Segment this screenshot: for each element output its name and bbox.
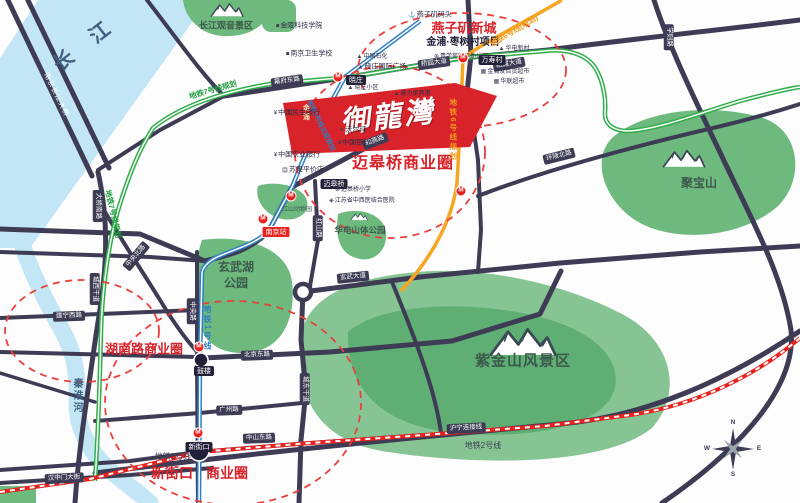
metro-icon-line6: M xyxy=(456,186,467,197)
poi-hualian-market-icon: ▦ xyxy=(494,79,500,85)
road-tag-beijingdonglu: 北京东路 xyxy=(241,350,273,361)
metro-icon-nanjing-station: M xyxy=(258,214,269,225)
poi-minsheng-bank-icon: ¥ xyxy=(274,111,277,117)
poi-xiaozhuang-estate: ▲晓庄小区 xyxy=(348,85,379,91)
metro6-label-lower: 地铁6号线规划 xyxy=(449,98,457,161)
rail-station-tag-nanjing: 南京站 xyxy=(262,226,291,238)
road-tag-xuezelu: 学则路 xyxy=(664,24,674,50)
metro7-label-left: 地铁7号线规划 xyxy=(104,189,122,239)
compass-s: S xyxy=(731,472,735,479)
road-tag-chengdonggandao: 城东干道 xyxy=(300,373,310,405)
poi-agri-bank: ¥中国农业银行 xyxy=(274,152,320,159)
poi-minsheng-bank-text: 中国民生银行 xyxy=(278,110,320,117)
road-tag-zhongshandonglu: 中山东路 xyxy=(243,433,275,444)
yangtze-river-label: 长 江 xyxy=(50,13,122,75)
poi-gaoli-furniture-text: 高力家具港 xyxy=(400,91,430,97)
compass-w: W xyxy=(704,446,710,453)
metro-icon-maigaoqiao: M xyxy=(286,191,297,202)
hongshan-zoo-label: 红山动物园 xyxy=(282,207,312,213)
poi-nanjing-health-school: ■南京卫生学校 xyxy=(286,51,333,58)
poi-sinopec: ▲中国石化 xyxy=(357,54,388,60)
xinjiekou-biz-label-1: 新街口 xyxy=(151,466,193,480)
poi-jinling-tech-text: 金陵科技学院 xyxy=(280,23,322,30)
poi-xiaozhuang-plaza: ▲晓庄国际广场 xyxy=(358,64,407,71)
road-tag-zhongyangbeilu: 中央北路 xyxy=(122,241,150,272)
road-tag-mufudonglu: 幕府东路 xyxy=(270,74,303,88)
road-tag-jianningxilu: 建宁西路 xyxy=(53,311,85,322)
poi-jinrunfa-mall: ▦金润发百货超市 xyxy=(481,69,530,75)
metro-icon-xiaozhuang: M xyxy=(333,72,344,83)
road-tag-huanlingbeilu: 环陵北路 xyxy=(542,148,575,165)
road-tag-guangzhoulu: 广州路 xyxy=(216,405,242,415)
xuanwu-lake-label-2: 公园 xyxy=(224,277,248,289)
road-tag-hongshanlu: 红山路 xyxy=(313,215,323,241)
poi-hualian-market: ▦华联超市 xyxy=(494,79,525,85)
poi-huadian-xincun: ▲华电新村 xyxy=(499,46,530,52)
metro1-ext-label: 地铁1号线北延规划 xyxy=(305,100,335,153)
poi-suguo-market-text: 苏果平价店 xyxy=(289,167,324,174)
poi-kindergarten-icon: ⊕ xyxy=(434,54,439,60)
poi-xiaozhuang-estate-icon: ▲ xyxy=(348,85,354,91)
poi-huadian-xincun-text: 华电新村 xyxy=(505,46,529,52)
bridge-label: 南京长江大桥 xyxy=(42,72,69,118)
qinhuai-river-label: 秦淮河 xyxy=(71,378,81,414)
poi-maigaoqiao-primary-icon: ⊕ xyxy=(335,187,340,193)
poi-suguo-market: ▤苏果平价店 xyxy=(282,167,324,174)
poi-nanjing-health-school-icon: ■ xyxy=(286,52,290,58)
poi-maigaoqiao-primary: ⊕迈皋桥小学 xyxy=(335,187,371,193)
poi-gaoli-furniture-icon: ▲ xyxy=(394,91,400,97)
xinjiekou-biz-label-2: 商业圈 xyxy=(206,466,248,480)
poi-jiangsu-hospital-text: 江苏省中西医结合医院 xyxy=(335,198,395,204)
road-tag-daqiaonanlu: 大桥南路 xyxy=(93,190,103,222)
poi-xiaozhuang-estate-text: 晓庄小区 xyxy=(354,85,378,91)
poi-jiangsu-hospital-icon: ◈ xyxy=(329,198,334,204)
station-tag-gulou: 鼓楼 xyxy=(194,366,214,376)
metro-icon-wanshoucun: M xyxy=(458,53,469,64)
station-tag-xinjiekou: 新街口 xyxy=(186,442,213,452)
poi-bank-of-china-text: 中国银行 xyxy=(342,140,370,147)
poi-jiangsu-hospital: ◈江苏省中西医结合医院 xyxy=(329,198,395,204)
poi-nanjing-health-school-text: 南京卫生学校 xyxy=(290,51,332,58)
zijinshan-label: 紫金山风景区 xyxy=(475,354,571,369)
road-tag-huninglianjiexian: 沪宁连接线 xyxy=(447,422,486,434)
poi-maigaoqiao-primary-text: 迈皋桥小学 xyxy=(341,187,371,193)
map-labels-layer: 长 江秦淮河南京长江大桥长江观音景区聚宝山玄武湖公园华电山体公园紫金山风景区红山… xyxy=(0,0,800,503)
road-tag-chengxigandao: 城西干道 xyxy=(90,273,100,305)
road-tag-hanzhongmen: 汉中门大街 xyxy=(45,472,84,484)
poi-yanziji-wharf-text: 燕子矶码头 xyxy=(417,12,452,19)
compass-n: N xyxy=(731,420,736,427)
poi-agri-bank-text: 中国农业银行 xyxy=(278,152,320,159)
poi-sinopec-text: 中国石化 xyxy=(363,54,387,60)
poi-xiaozhuang-plaza-icon: ▲ xyxy=(358,65,364,71)
maigaoqiao-biz-label: 迈皋桥商业圈 xyxy=(352,156,454,172)
poi-jinling-tech: ■金陵科技学院 xyxy=(276,23,323,30)
poi-sinopec-icon: ▲ xyxy=(357,54,363,60)
road-tag-zhongyanglu: 中央路 xyxy=(187,298,197,324)
yanziji-newtown-label: 燕子矶新城 xyxy=(431,22,496,35)
compass-e: E xyxy=(757,446,761,453)
poi-walmart: ✳沃尔玛 xyxy=(339,127,366,134)
metro-icon-gulou: M xyxy=(194,342,205,353)
metro2-label-right: 地铁2号线 xyxy=(465,442,501,450)
jubaoshan-label: 聚宝山 xyxy=(681,177,717,189)
poi-huadian-xincun-icon: ▲ xyxy=(499,46,505,52)
poi-bank-of-china-icon: ¥ xyxy=(338,141,341,147)
guanyin-scenic-label: 长江观音景区 xyxy=(199,22,253,31)
station-tag-xiaozhuang: 晓庄 xyxy=(346,75,366,85)
poi-minsheng-bank: ¥中国民生银行 xyxy=(274,110,320,117)
poi-suguo-market-icon: ▤ xyxy=(282,168,288,174)
huadian-park-label: 华电山体公园 xyxy=(334,226,385,235)
poi-walmart-text: 沃尔玛 xyxy=(346,127,367,134)
poi-yanziji-wharf-icon: ⚓ xyxy=(408,13,415,19)
poi-hualian-market-text: 华联超市 xyxy=(500,79,524,85)
poi-agri-bank-icon: ¥ xyxy=(274,153,277,159)
poi-jinrunfa-mall-text: 金润发百货超市 xyxy=(487,69,529,75)
location-map: 长 江秦淮河南京长江大桥长江观音景区聚宝山玄武湖公园华电山体公园紫金山风景区红山… xyxy=(0,0,800,503)
xuanwu-lake-label-1: 玄武湖 xyxy=(218,261,254,273)
metro-icon-xinjiekou: M xyxy=(193,428,204,439)
poi-walmart-icon: ✳ xyxy=(339,128,344,134)
metro7-label-upper: 地铁7号线规划 xyxy=(188,80,237,101)
poi-bank-of-china: ¥中国银行 xyxy=(338,140,370,147)
road-tag-xuanwudadao: 玄武大道 xyxy=(337,271,370,284)
poi-yanziji-wharf: ⚓燕子矶码头 xyxy=(408,12,451,19)
poi-jinrunfa-mall-icon: ▦ xyxy=(481,69,487,75)
poi-jinling-tech-icon: ■ xyxy=(276,24,280,30)
poi-xiaozhuang-plaza-text: 晓庄国际广场 xyxy=(364,64,406,71)
poi-gaoli-furniture: ▲高力家具港 xyxy=(394,91,431,97)
metro2-label-left: 地铁2号线 xyxy=(155,453,191,461)
hunanlu-biz-label: 湖南路商业圈 xyxy=(105,343,183,356)
